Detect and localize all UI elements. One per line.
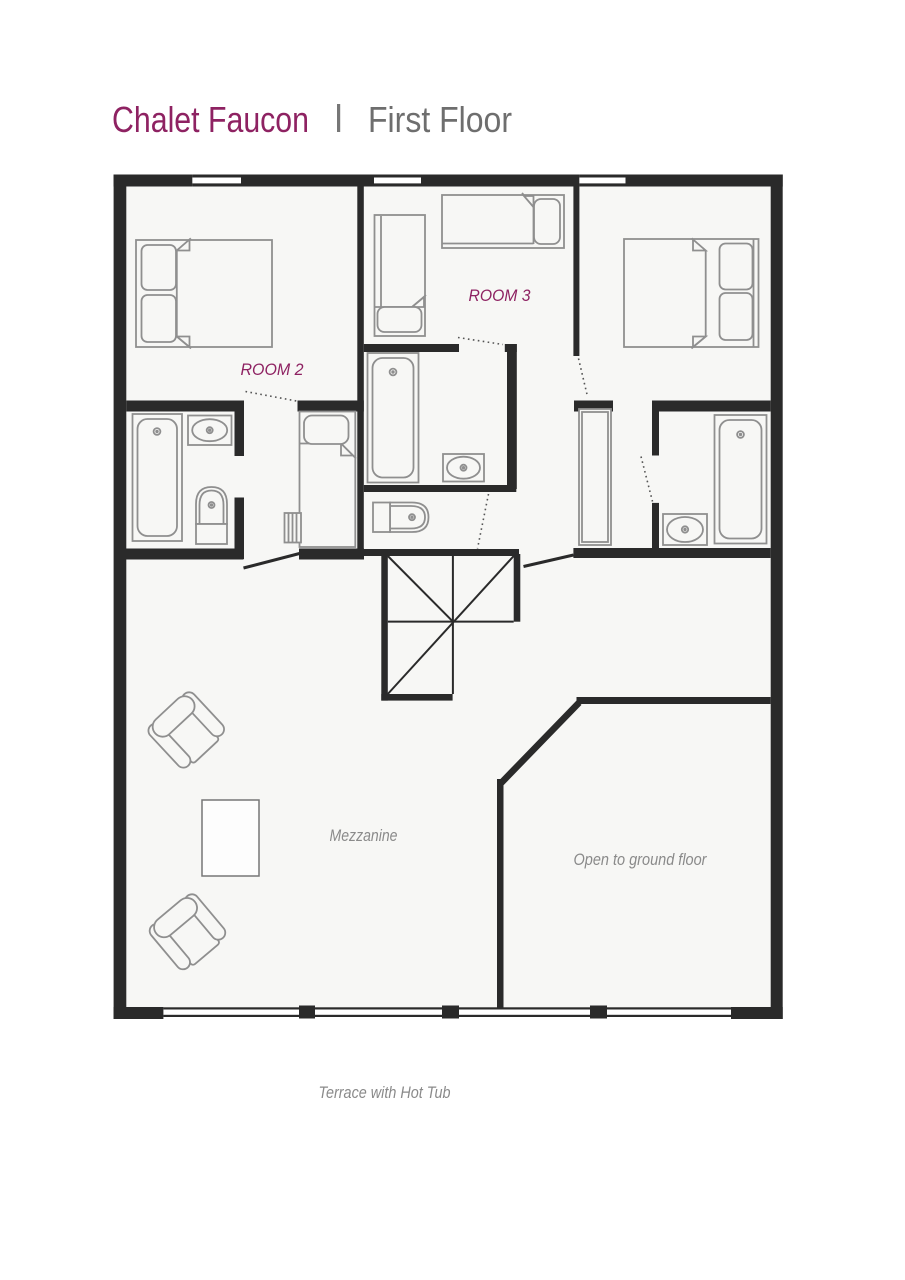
svg-text:First Floor: First Floor (368, 99, 512, 140)
svg-text:Open to ground floor: Open to ground floor (574, 851, 708, 869)
svg-text:ROOM 2: ROOM 2 (241, 360, 305, 379)
svg-text:ROOM 3: ROOM 3 (469, 286, 532, 305)
svg-text:Mezzanine: Mezzanine (330, 827, 398, 845)
svg-text:Terrace with Hot Tub: Terrace with Hot Tub (319, 1083, 451, 1102)
svg-text:Chalet Faucon: Chalet Faucon (112, 99, 309, 140)
